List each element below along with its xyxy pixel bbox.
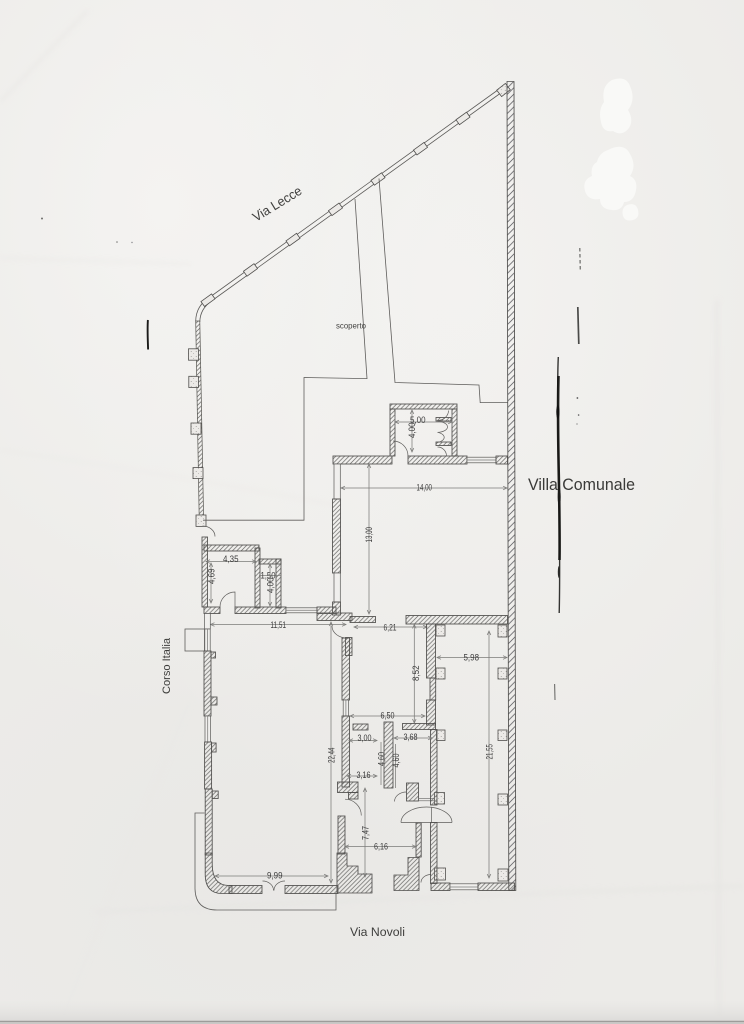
svg-text:4,60: 4,60 bbox=[377, 752, 387, 766]
svg-text:4,00: 4,00 bbox=[407, 422, 417, 438]
svg-text:7,47: 7,47 bbox=[361, 826, 371, 840]
svg-text:3,68: 3,68 bbox=[404, 732, 418, 742]
svg-text:scoperto: scoperto bbox=[336, 321, 366, 331]
svg-text:21,55: 21,55 bbox=[485, 744, 495, 760]
svg-text:8,52: 8,52 bbox=[411, 665, 421, 681]
svg-text:22,44: 22,44 bbox=[327, 747, 337, 763]
svg-text:14,00: 14,00 bbox=[417, 483, 433, 493]
svg-text:6,21: 6,21 bbox=[384, 623, 397, 633]
svg-text:4,69: 4,69 bbox=[207, 568, 217, 584]
svg-text:6,50: 6,50 bbox=[381, 711, 395, 721]
svg-text:13,00: 13,00 bbox=[364, 527, 374, 543]
svg-text:11,51: 11,51 bbox=[271, 620, 287, 630]
svg-text:4,35: 4,35 bbox=[223, 554, 239, 564]
svg-text:6,16: 6,16 bbox=[374, 842, 388, 852]
svg-text:Villa Comunale: Villa Comunale bbox=[528, 475, 635, 494]
svg-text:4,00: 4,00 bbox=[266, 577, 276, 593]
svg-text:Via Novoli: Via Novoli bbox=[350, 925, 405, 939]
svg-text:3,16: 3,16 bbox=[357, 770, 371, 780]
svg-text:3,00: 3,00 bbox=[358, 733, 372, 743]
svg-text:9,99: 9,99 bbox=[267, 871, 283, 881]
svg-text:4,60: 4,60 bbox=[391, 753, 401, 767]
svg-text:5,98: 5,98 bbox=[464, 653, 480, 663]
svg-text:Corso Italia: Corso Italia bbox=[161, 637, 173, 694]
